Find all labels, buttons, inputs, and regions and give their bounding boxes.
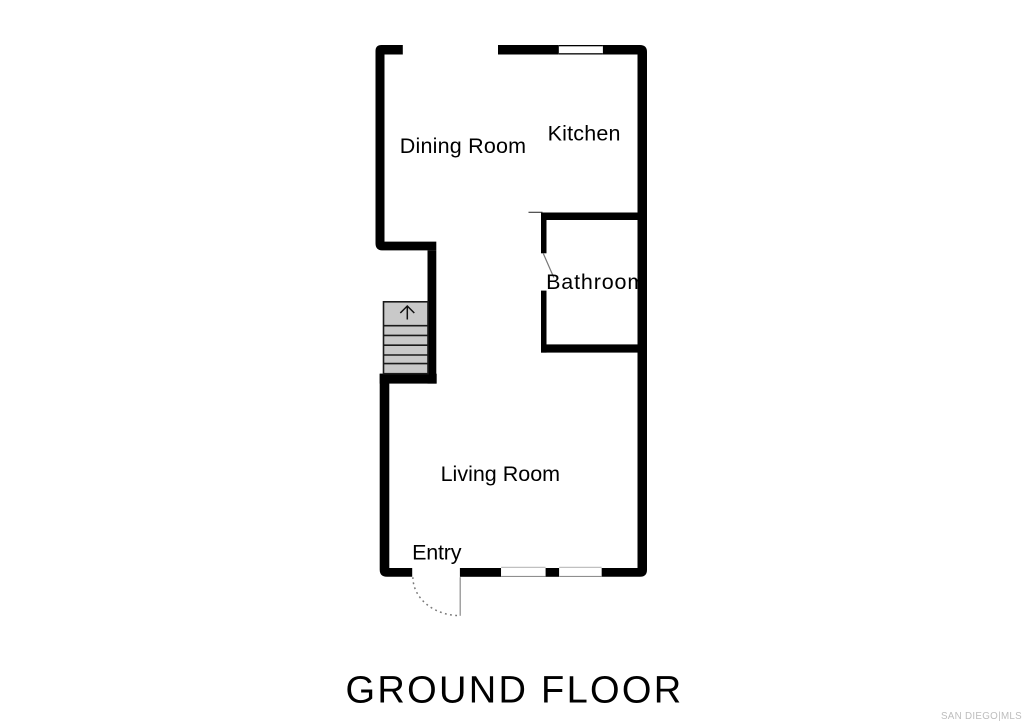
svg-text:Dining Room: Dining Room <box>400 134 526 158</box>
svg-text:Bathroom: Bathroom <box>546 270 646 294</box>
svg-text:Kitchen: Kitchen <box>548 122 621 146</box>
svg-text:SAN DIEGO|MLS: SAN DIEGO|MLS <box>941 711 1022 722</box>
svg-text:Living Room: Living Room <box>441 462 560 486</box>
svg-text:GROUND FLOOR: GROUND FLOOR <box>346 670 684 712</box>
svg-text:Entry: Entry <box>412 541 462 565</box>
